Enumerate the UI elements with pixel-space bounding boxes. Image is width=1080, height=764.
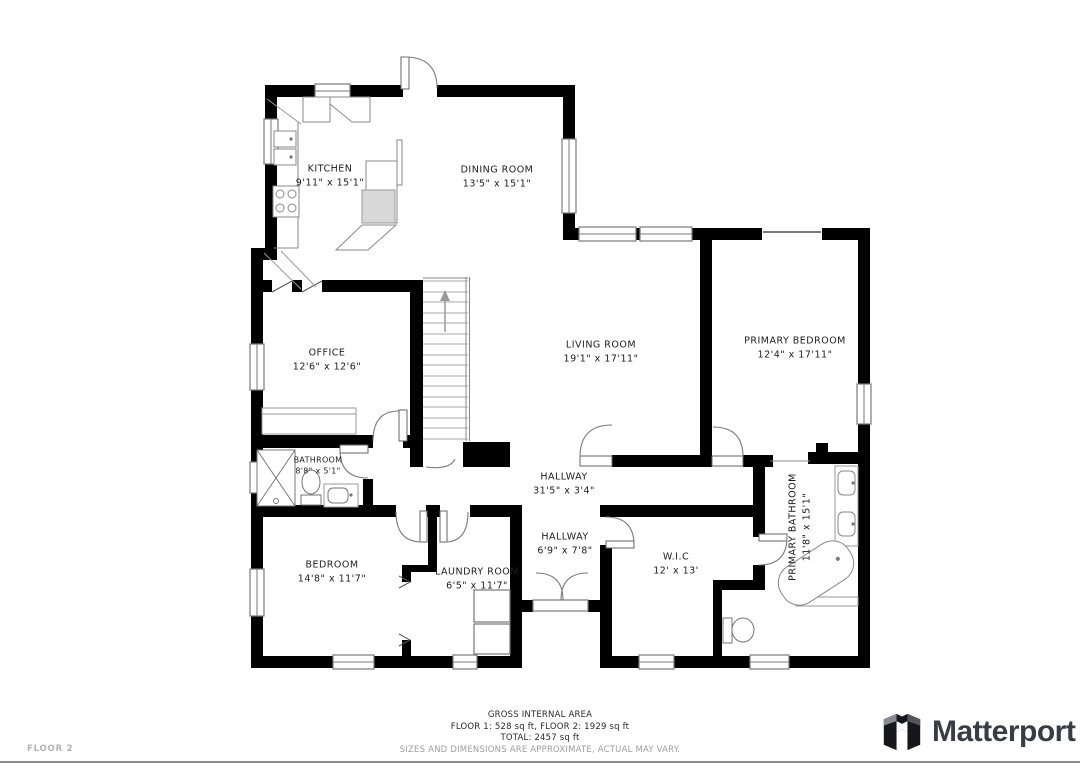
- room-dims: 13'5" x 15'1": [461, 177, 534, 191]
- water-closet-fixtures: [723, 618, 754, 643]
- corner-cabinet: [330, 97, 370, 122]
- room-label-primary-bedroom: PRIMARY BEDROOM 12'4" x 17'11": [744, 335, 846, 362]
- counter-edge: [397, 140, 402, 185]
- room-label-kitchen: KITCHEN 9'11" x 15'1": [296, 163, 364, 190]
- room-dims: 12'6" x 12'6": [293, 360, 361, 374]
- matterport-logo: Matterport: [882, 712, 1075, 752]
- room-dims: 6'9" x 7'8": [537, 544, 592, 558]
- angled-counter: [336, 225, 396, 250]
- refrigerator: [303, 97, 330, 122]
- room-dims: 19'1" x 17'11": [564, 352, 639, 366]
- room-dims: 31'5" x 3'4": [533, 484, 595, 498]
- room-name: LIVING ROOM: [564, 339, 639, 353]
- stove: [273, 186, 299, 217]
- room-dims: 9'11" x 15'1": [296, 176, 364, 190]
- room-name: OFFICE: [293, 347, 361, 361]
- sink: [328, 488, 348, 503]
- room-label-living-room: LIVING ROOM 19'1" x 17'11": [564, 339, 639, 366]
- bottom-border-line: [0, 761, 1080, 763]
- room-dims: 6'5" x 11'7": [435, 579, 519, 593]
- floor-number-label: FLOOR 2: [27, 744, 73, 754]
- staircase: [423, 277, 470, 441]
- dryer: [474, 624, 510, 654]
- room-name: PRIMARY BEDROOM: [744, 335, 846, 349]
- room-name: DINING ROOM: [461, 164, 534, 178]
- room-label-laundry-room: LAUNDRY ROOM 6'5" x 11'7": [435, 566, 519, 593]
- kitchen-sink-basin: [274, 149, 296, 165]
- room-label-office: OFFICE 12'6" x 12'6": [293, 347, 361, 374]
- office-furniture: [262, 408, 356, 434]
- toilet-bowl: [732, 618, 754, 642]
- room-dims: 12'4" x 17'11": [744, 348, 846, 362]
- room-label-bathroom: BATHROOM 8'8" x 5'1": [294, 456, 343, 477]
- room-name: HALLWAY: [537, 531, 592, 545]
- washer: [474, 590, 510, 622]
- room-label-bedroom: BEDROOM 14'8" x 11'7": [298, 559, 366, 586]
- room-label-dining-room: DINING ROOM 13'5" x 15'1": [461, 164, 534, 191]
- toilet-tank: [723, 618, 732, 643]
- room-name: HALLWAY: [533, 471, 595, 485]
- room-dims: 8'8" x 5'1": [294, 466, 343, 477]
- room-dims: 12' x 13': [653, 564, 699, 578]
- room-dims: 11'8" x 15'1": [800, 473, 814, 581]
- room-name: KITCHEN: [296, 163, 364, 177]
- room-label-primary-bathroom: PRIMARY BATHROOM 11'8" x 15'1": [787, 473, 814, 581]
- credenza: [262, 408, 356, 434]
- floorplan-page: KITCHEN 9'11" x 15'1" DINING ROOM 13'5" …: [0, 0, 1080, 764]
- room-label-wic: W.I.C 12' x 13': [653, 551, 699, 578]
- room-name: BATHROOM: [294, 456, 343, 467]
- room-dims: 14'8" x 11'7": [298, 572, 366, 586]
- room-label-hallway-2: HALLWAY 6'9" x 7'8": [537, 531, 592, 558]
- room-name: LAUNDRY ROOM: [435, 566, 519, 580]
- room-label-hallway-1: HALLWAY 31'5" x 3'4": [533, 471, 595, 498]
- kitchen-sink-basin: [274, 131, 296, 147]
- laundry-appliances: [474, 590, 510, 654]
- matterport-m-icon: [882, 712, 922, 752]
- toilet-tank: [301, 495, 321, 505]
- matterport-wordmark: Matterport: [932, 715, 1075, 749]
- room-name: BEDROOM: [298, 559, 366, 573]
- room-name: PRIMARY BATHROOM: [787, 473, 801, 581]
- floor-plan-drawing: [0, 0, 1080, 764]
- room-name: W.I.C: [653, 551, 699, 565]
